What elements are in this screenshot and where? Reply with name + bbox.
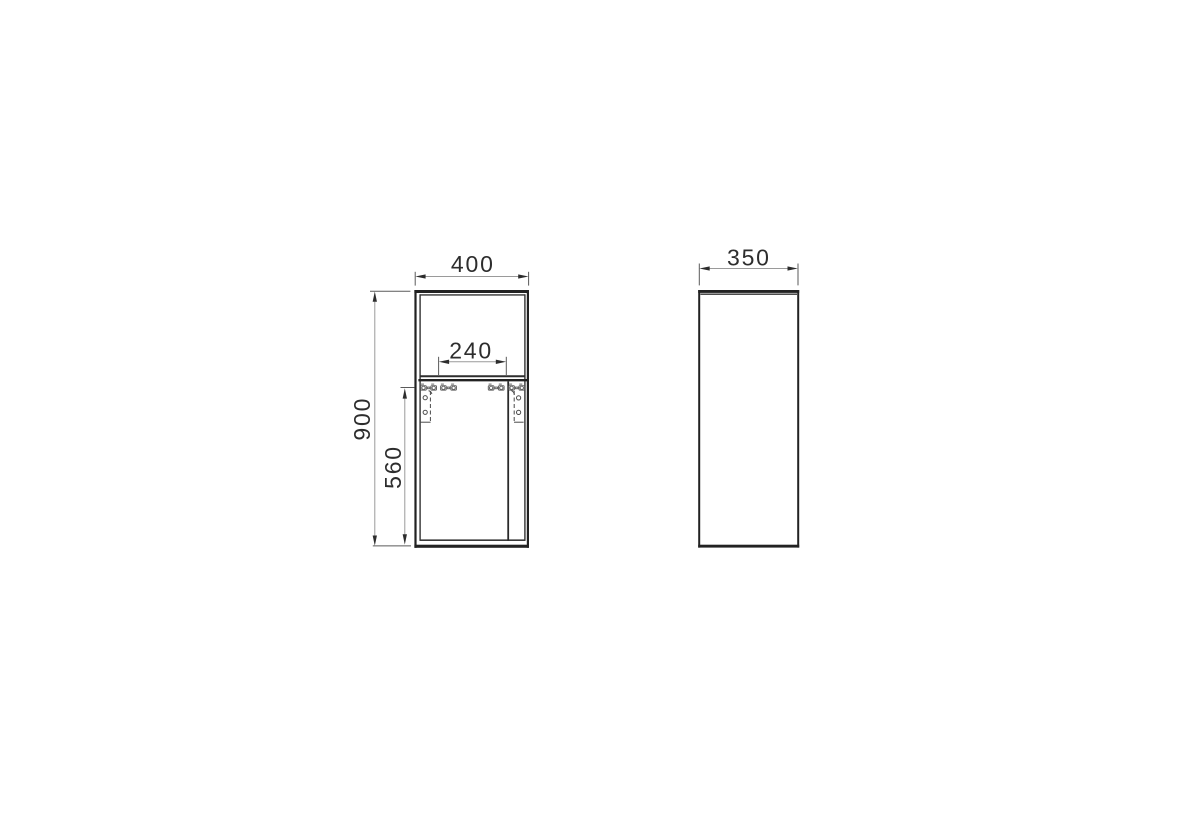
- svg-text:900: 900: [349, 397, 375, 441]
- svg-text:560: 560: [380, 445, 406, 489]
- svg-text:400: 400: [451, 251, 495, 277]
- svg-text:350: 350: [727, 244, 771, 270]
- svg-text:240: 240: [449, 338, 493, 364]
